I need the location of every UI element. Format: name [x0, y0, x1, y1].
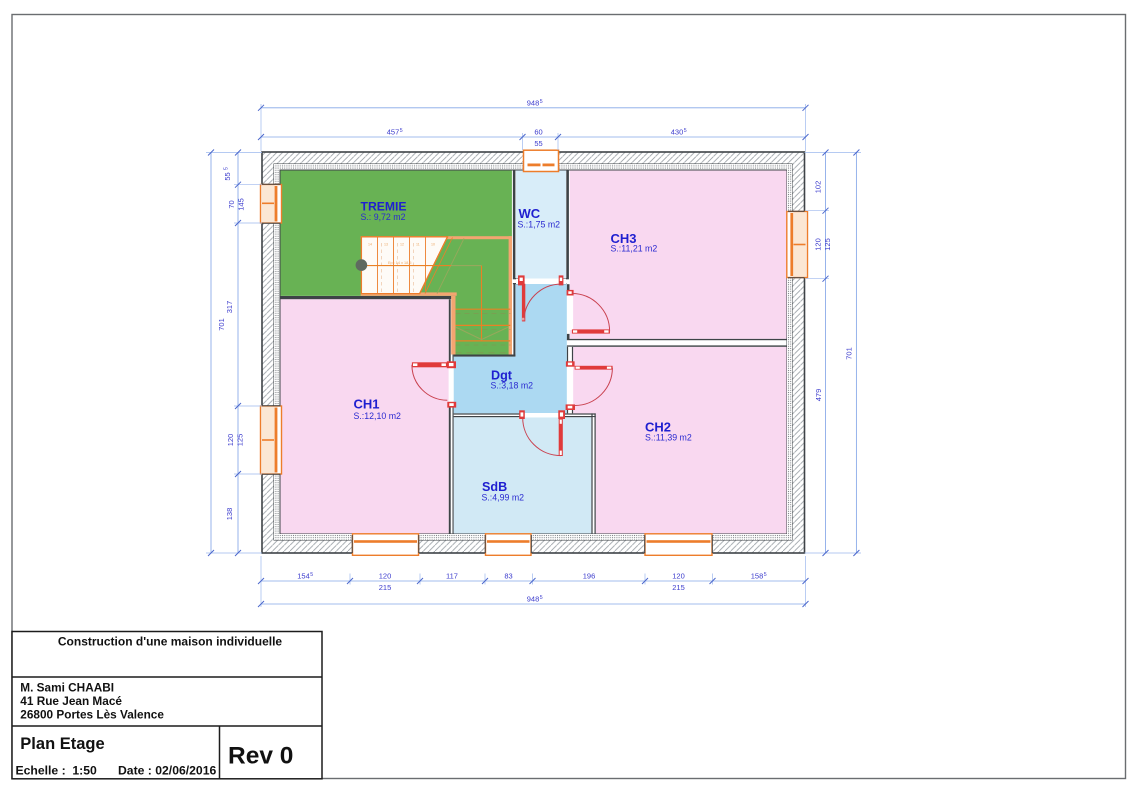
svg-text:701: 701	[217, 318, 226, 331]
svg-text:317: 317	[225, 301, 234, 314]
svg-text:S.:1,75 m2: S.:1,75 m2	[518, 220, 561, 230]
svg-text:125: 125	[236, 434, 245, 447]
svg-text:11: 11	[416, 243, 420, 247]
svg-text:Construction d'une maison indi: Construction d'une maison individuelle	[58, 635, 283, 649]
svg-text:457: 457	[387, 127, 400, 136]
svg-text:S.:12,10 m2: S.:12,10 m2	[354, 411, 402, 421]
svg-text:S.:11,39 m2: S.:11,39 m2	[645, 433, 692, 443]
svg-text:S.: 9,72 m2: S.: 9,72 m2	[361, 212, 406, 222]
svg-text:701: 701	[845, 347, 854, 360]
svg-text:12: 12	[400, 243, 404, 247]
svg-text:CH1: CH1	[354, 397, 380, 412]
svg-text:145: 145	[237, 198, 246, 211]
svg-text:5: 5	[684, 128, 687, 134]
svg-text:83: 83	[504, 572, 512, 581]
svg-text:Echelle : 1:50: Echelle : 1:50	[16, 764, 98, 778]
svg-text:60: 60	[534, 127, 542, 136]
svg-text:430: 430	[671, 127, 684, 136]
svg-text:196: 196	[583, 572, 596, 581]
svg-text:102: 102	[814, 181, 823, 194]
svg-text:948: 948	[527, 98, 540, 107]
svg-text:41 Rue Jean Macé: 41 Rue Jean Macé	[20, 694, 122, 708]
svg-text:55: 55	[223, 172, 232, 180]
svg-text:120: 120	[226, 434, 235, 447]
svg-text:S.:11,21 m2: S.:11,21 m2	[611, 244, 658, 254]
svg-text:117: 117	[446, 572, 458, 581]
svg-text:10: 10	[431, 243, 435, 247]
svg-text:5: 5	[310, 572, 313, 578]
svg-text:215: 215	[672, 583, 685, 592]
svg-text:125: 125	[823, 238, 832, 251]
svg-text:Rev 0: Rev 0	[228, 743, 293, 770]
svg-text:S.:4,99 m2: S.:4,99 m2	[482, 493, 525, 503]
svg-text:Ep : 14 x 18,5: Ep : 14 x 18,5	[388, 261, 411, 265]
svg-text:5: 5	[540, 595, 543, 601]
svg-text:5: 5	[224, 167, 230, 170]
svg-text:215: 215	[379, 583, 392, 592]
svg-text:5: 5	[400, 128, 403, 134]
svg-text:5: 5	[764, 572, 767, 578]
svg-text:120: 120	[814, 238, 823, 251]
svg-text:5: 5	[540, 99, 543, 105]
svg-text:948: 948	[527, 595, 540, 604]
svg-text:158: 158	[751, 572, 764, 581]
svg-text:120: 120	[379, 572, 392, 581]
svg-text:13: 13	[384, 243, 388, 247]
svg-text:26800 Portes Lès Valence: 26800 Portes Lès Valence	[20, 708, 164, 722]
svg-text:Plan Etage: Plan Etage	[20, 735, 104, 753]
svg-text:138: 138	[225, 508, 234, 521]
svg-text:154: 154	[297, 572, 310, 581]
svg-text:479: 479	[814, 389, 823, 402]
svg-text:70: 70	[227, 200, 236, 208]
svg-text:S.:3,18 m2: S.:3,18 m2	[491, 381, 534, 391]
svg-text:55: 55	[534, 139, 542, 148]
svg-text:M. Sami CHAABI: M. Sami CHAABI	[20, 681, 114, 695]
svg-text:Date : 02/06/2016: Date : 02/06/2016	[118, 764, 216, 778]
svg-text:120: 120	[672, 572, 685, 581]
svg-text:14: 14	[368, 243, 372, 247]
